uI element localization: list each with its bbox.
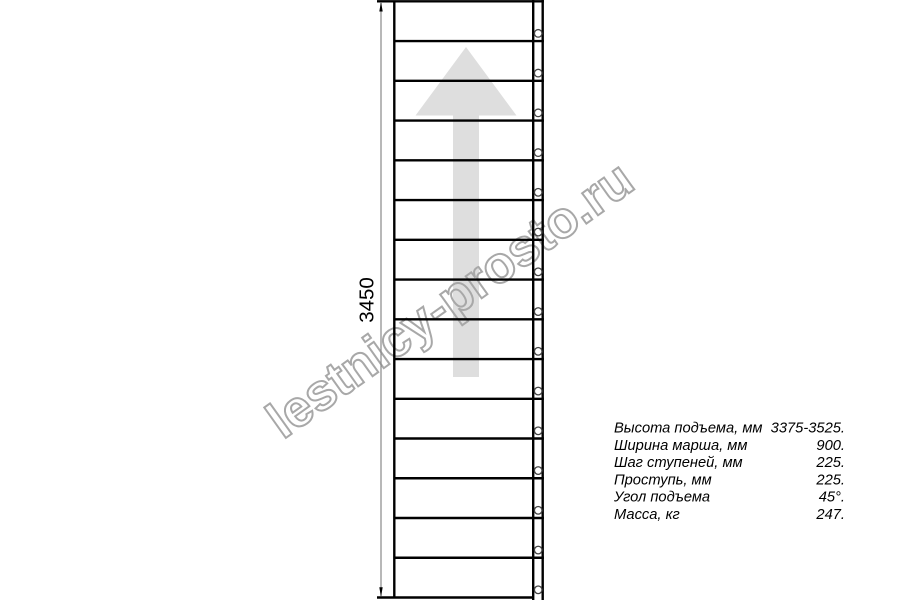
svg-text:lestnicy-prosto.ru: lestnicy-prosto.ru [256,149,644,449]
svg-text:Проступь, мм: Проступь, мм [614,472,712,488]
svg-text:225.: 225. [815,472,845,488]
svg-text:247.: 247. [815,507,845,523]
svg-text:225.: 225. [815,455,845,471]
svg-text:45°.: 45°. [819,490,845,506]
svg-text:3450: 3450 [356,277,379,323]
svg-text:3375-3525.: 3375-3525. [771,421,845,437]
svg-text:Масса, кг: Масса, кг [614,507,680,523]
svg-text:900.: 900. [816,438,845,454]
svg-text:Шаг ступеней, мм: Шаг ступеней, мм [614,455,743,471]
svg-text:Угол подъема: Угол подъема [613,490,710,506]
svg-text:Высота подъема, мм: Высота подъема, мм [614,421,762,437]
svg-text:Ширина марша, мм: Ширина марша, мм [614,438,747,454]
